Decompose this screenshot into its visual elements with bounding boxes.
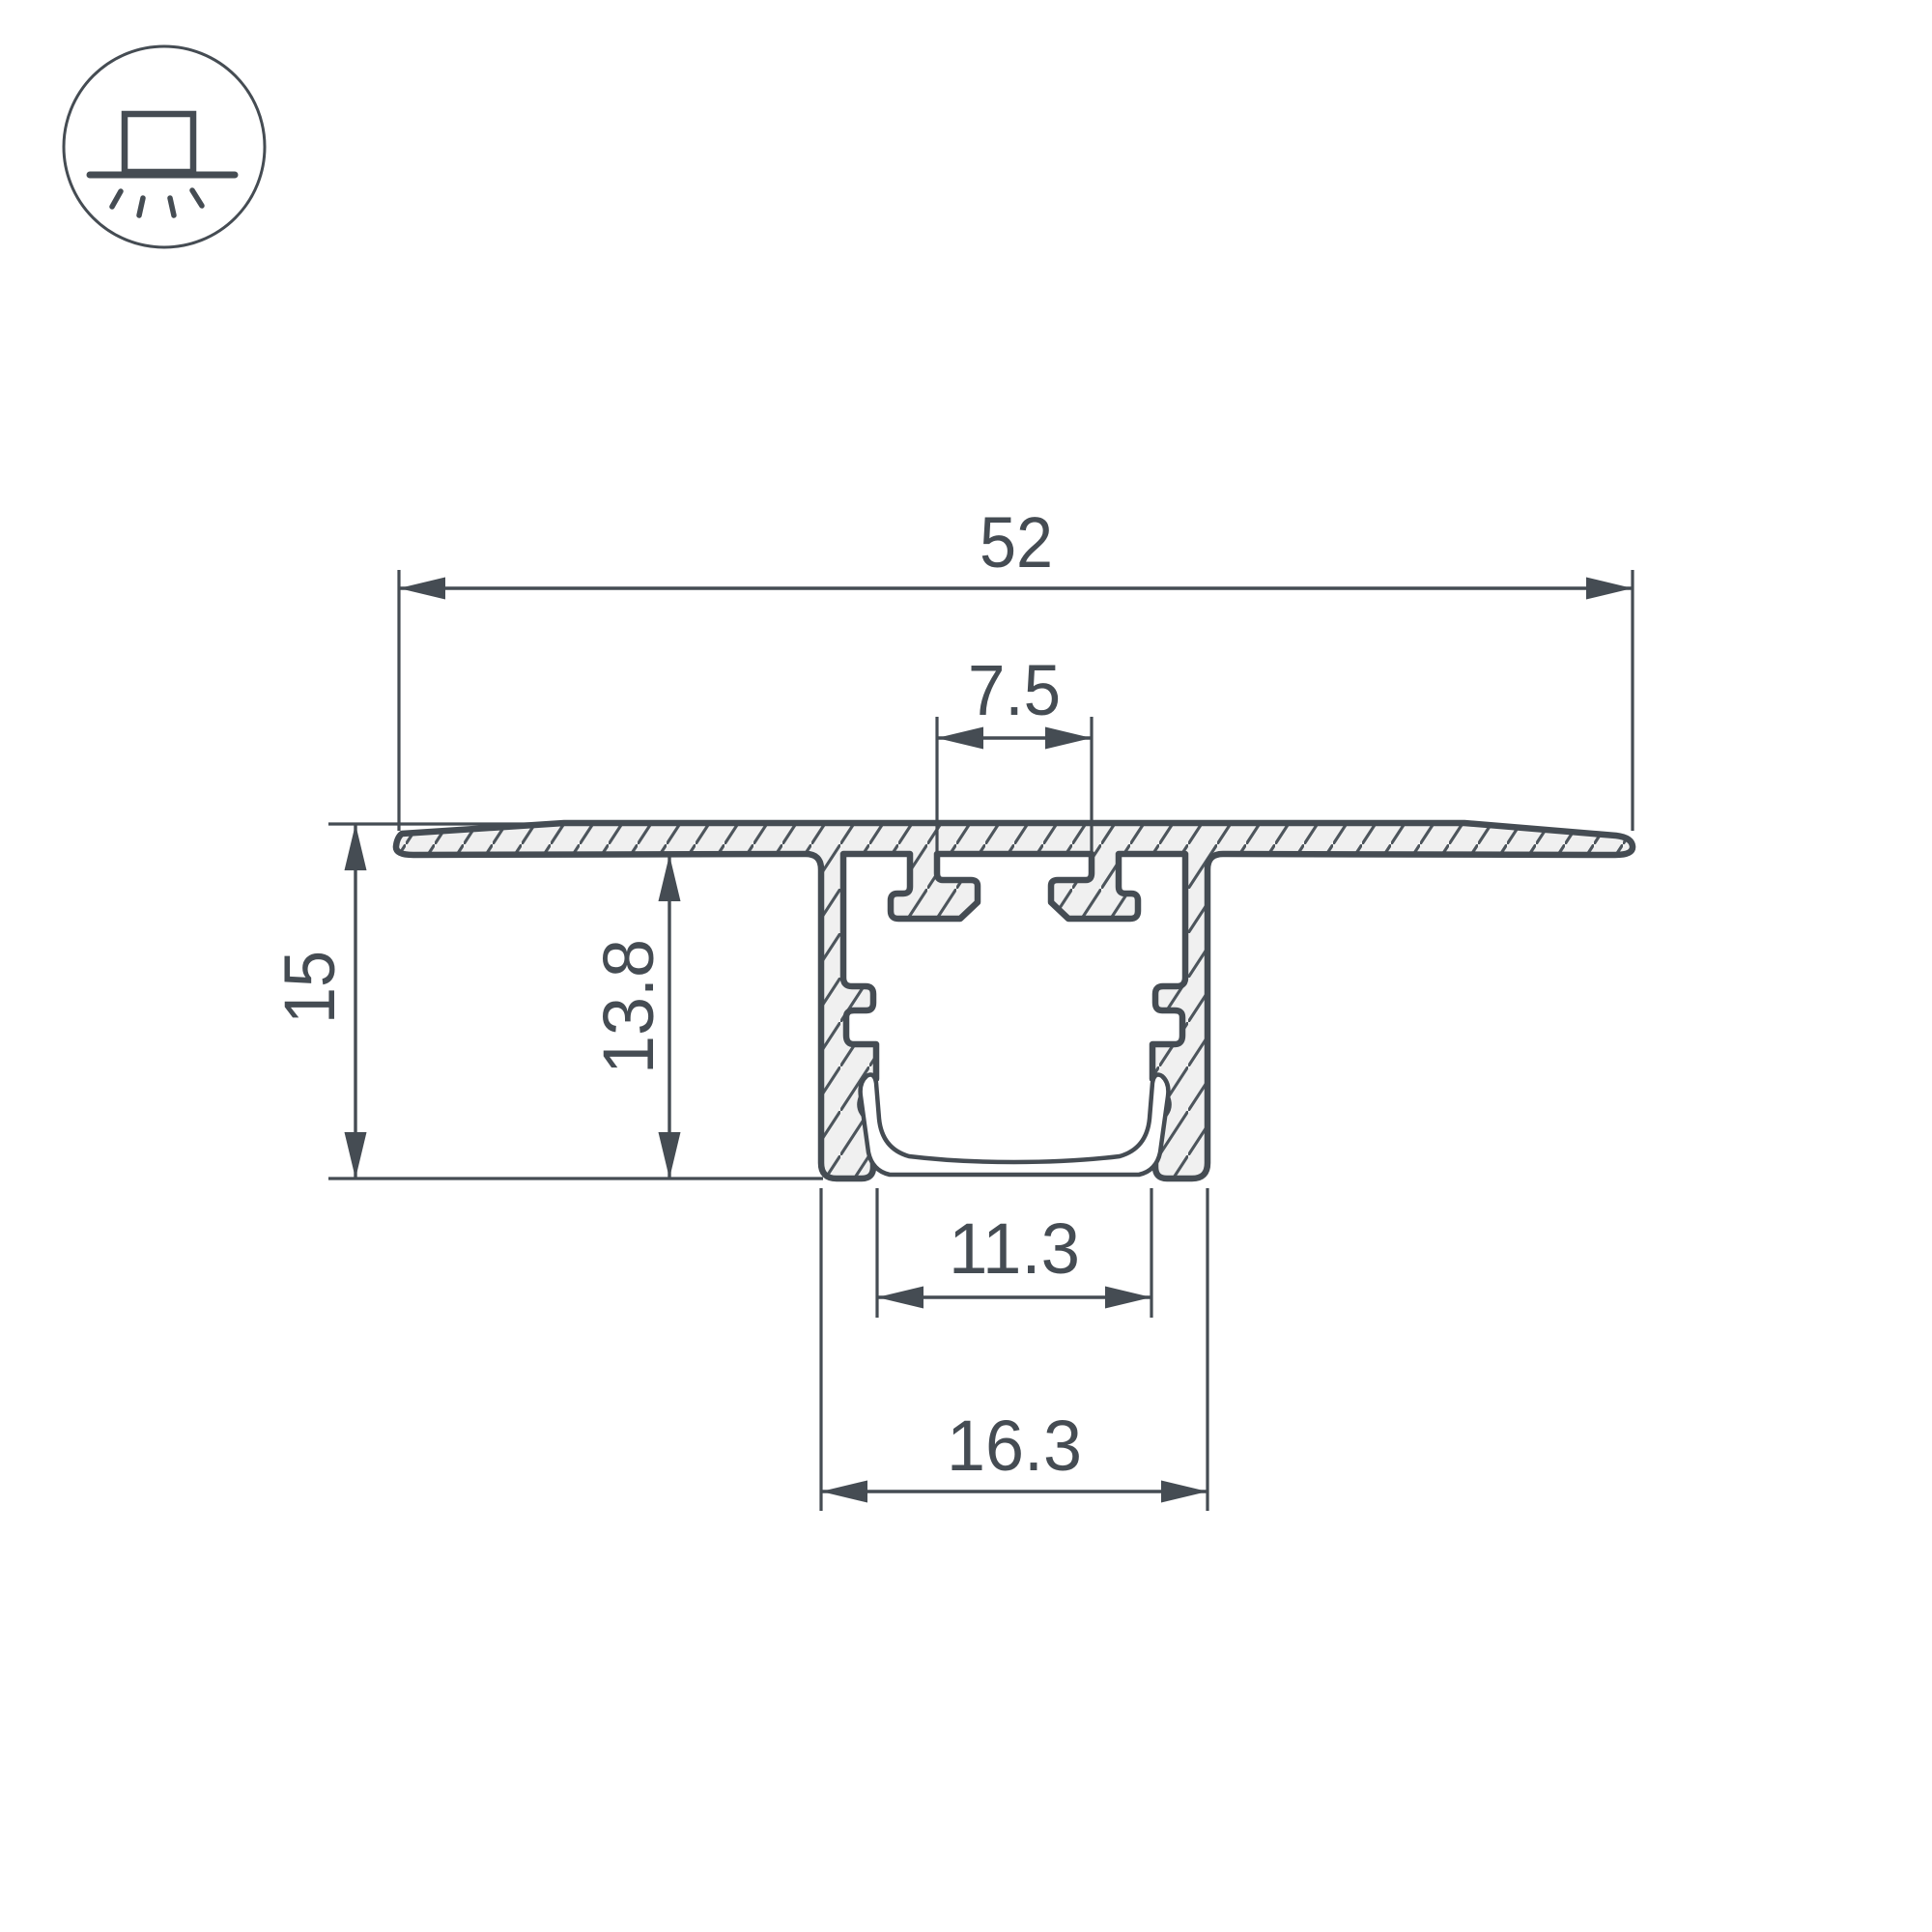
dimension-inner-width-label: 11.3	[949, 1208, 1080, 1289]
profile-body	[396, 823, 1633, 1179]
fixture-square	[125, 114, 193, 172]
arrowhead-icon	[345, 1132, 367, 1179]
arrowhead-icon	[659, 1132, 681, 1179]
arrowhead-icon	[1586, 578, 1633, 600]
arrowhead-icon	[1105, 1287, 1151, 1309]
dimension-overall-height-label: 15	[270, 951, 350, 1024]
recessed-mount-light-icon	[64, 46, 265, 247]
arrowhead-icon	[345, 824, 367, 870]
dimension-inner-width: 11.3	[877, 1188, 1151, 1318]
profile-cross-section	[396, 823, 1633, 1179]
diffuser-lens	[861, 1075, 1169, 1175]
technical-drawing-canvas: 52 7.5 15 13.8 11.3	[0, 0, 1932, 1932]
arrowhead-icon	[659, 855, 681, 901]
dimension-overall-width-label: 52	[980, 502, 1053, 582]
dimension-channel-outer-width-label: 16.3	[947, 1406, 1082, 1486]
arrowhead-icon	[877, 1287, 923, 1309]
dimension-recess-depth-label: 13.8	[588, 939, 668, 1074]
arrowhead-icon	[399, 578, 445, 600]
arrowhead-icon	[821, 1481, 867, 1503]
dimension-overall-height: 15	[270, 824, 823, 1179]
dimension-recess-depth: 13.8	[588, 855, 681, 1179]
dimension-slot-width-label: 7.5	[968, 650, 1061, 730]
arrowhead-icon	[1161, 1481, 1207, 1503]
light-rays-icon	[112, 190, 202, 215]
